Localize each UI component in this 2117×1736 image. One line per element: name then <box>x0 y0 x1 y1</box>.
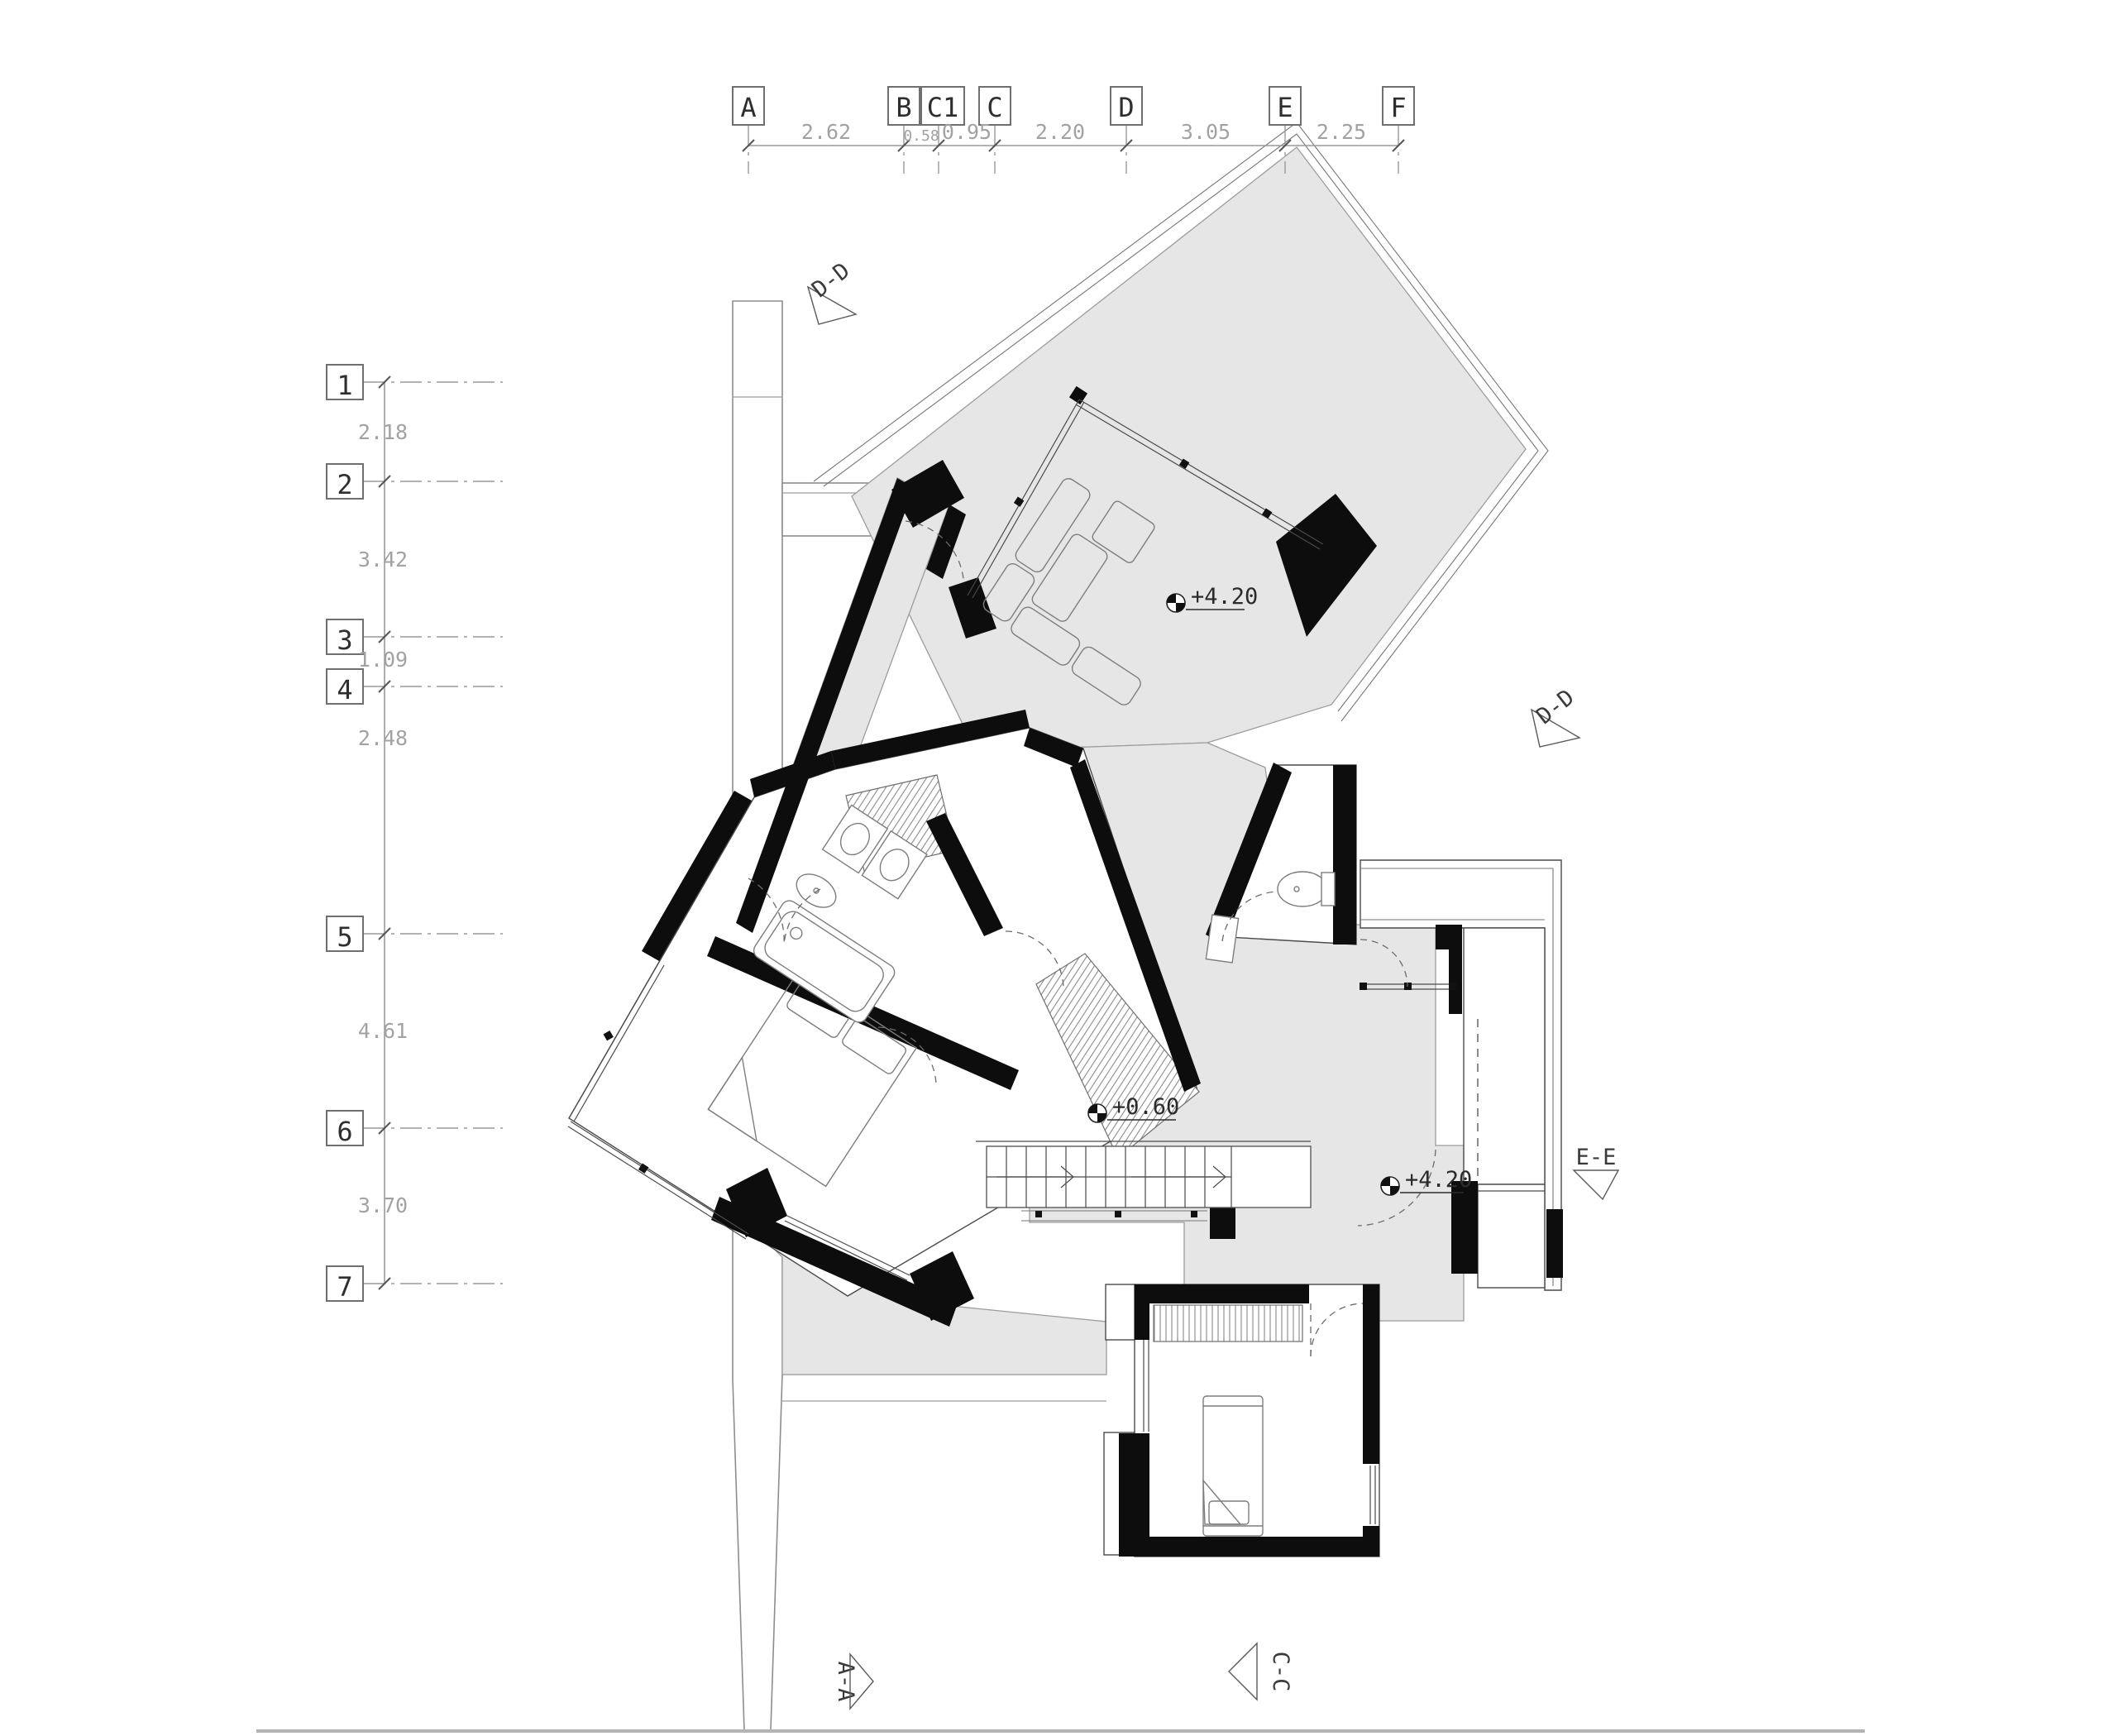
bedroom-wardrobe-hatch <box>1154 1305 1302 1341</box>
level-value-terrace: +4.20 <box>1191 584 1258 610</box>
grid-row-label-2: 2 <box>337 469 352 500</box>
single-bed <box>1203 1396 1263 1536</box>
wall-bb-left <box>1119 1433 1149 1557</box>
section-label-cc: C-C <box>1268 1652 1293 1692</box>
dim-1-2: 2.18 <box>358 420 408 444</box>
dim-E-F: 2.25 <box>1317 120 1366 144</box>
grid-row-label-3: 3 <box>337 624 352 656</box>
grid-top: A B C1 C D E F 2.62 0.58 0.95 2.20 3.05 … <box>733 87 1414 174</box>
level-value-hall: +0.60 <box>1112 1094 1179 1120</box>
grid-col-label-F: F <box>1390 92 1406 123</box>
dim-6-7: 3.70 <box>358 1193 408 1217</box>
section-marker-cc: C-C <box>1229 1643 1293 1700</box>
section-label-ee: E-E <box>1576 1145 1617 1170</box>
dim-2-3: 3.42 <box>358 548 408 571</box>
section-label-dd-right: D-D <box>1532 685 1579 729</box>
grid-row-label-6: 6 <box>337 1116 352 1147</box>
dim-4-5: 2.48 <box>358 726 408 750</box>
wall-pillar-notched <box>1436 925 1462 1014</box>
wall-se-bar-2 <box>1546 1209 1563 1278</box>
grid-row-label-7: 7 <box>337 1271 352 1303</box>
wall-bb-bottom <box>1144 1537 1379 1557</box>
grid-left: 1 2 3 4 5 6 7 2.18 3.42 1.09 2.48 4.61 3… <box>327 365 503 1303</box>
level-value-landing: +4.20 <box>1405 1167 1472 1193</box>
terrace-floor <box>852 147 1526 751</box>
wall-wc-right <box>1333 765 1356 945</box>
section-marker-aa: A-A <box>833 1654 873 1709</box>
section-label-aa: A-A <box>833 1662 858 1702</box>
dim-B-C1: 0.58 <box>903 127 939 145</box>
wall-bb-left-top <box>1135 1303 1149 1340</box>
wall-bb-top <box>1135 1284 1309 1303</box>
grid-row-label-1: 1 <box>337 370 352 401</box>
dim-3-4: 1.09 <box>358 648 408 672</box>
section-label-dd-top: D-D <box>807 258 855 303</box>
dim-A-B: 2.62 <box>801 120 851 144</box>
grid-col-label-E: E <box>1277 92 1293 123</box>
grid-row-label-5: 5 <box>337 921 352 953</box>
floor-plan-drawing: A B C1 C D E F 2.62 0.58 0.95 2.20 3.05 … <box>0 0 2117 1736</box>
grid-row-label-4: 4 <box>337 674 352 705</box>
grid-col-label-C1: C1 <box>927 92 959 123</box>
se-terrace <box>1464 928 1545 1184</box>
bedroom-step-1 <box>1106 1284 1135 1340</box>
se-small-room <box>1478 1184 1545 1288</box>
section-marker-dd-right: D-D <box>1532 685 1579 747</box>
grid-col-label-D: D <box>1118 92 1134 123</box>
dim-C1-C: 0.95 <box>942 120 992 144</box>
dim-D-E: 3.05 <box>1181 120 1231 144</box>
dim-5-6: 4.61 <box>358 1019 408 1043</box>
section-marker-ee: E-E <box>1574 1145 1618 1199</box>
grid-col-label-B: B <box>896 92 911 123</box>
wall-stair-newel <box>1210 1208 1235 1239</box>
grid-col-label-A: A <box>740 92 756 123</box>
wall-bb-right-1 <box>1363 1284 1379 1464</box>
dim-C-D: 2.20 <box>1035 120 1085 144</box>
grid-col-label-C: C <box>987 92 1002 123</box>
wall-se-bar-1 <box>1451 1181 1478 1274</box>
section-marker-dd-top: D-D <box>807 258 856 324</box>
